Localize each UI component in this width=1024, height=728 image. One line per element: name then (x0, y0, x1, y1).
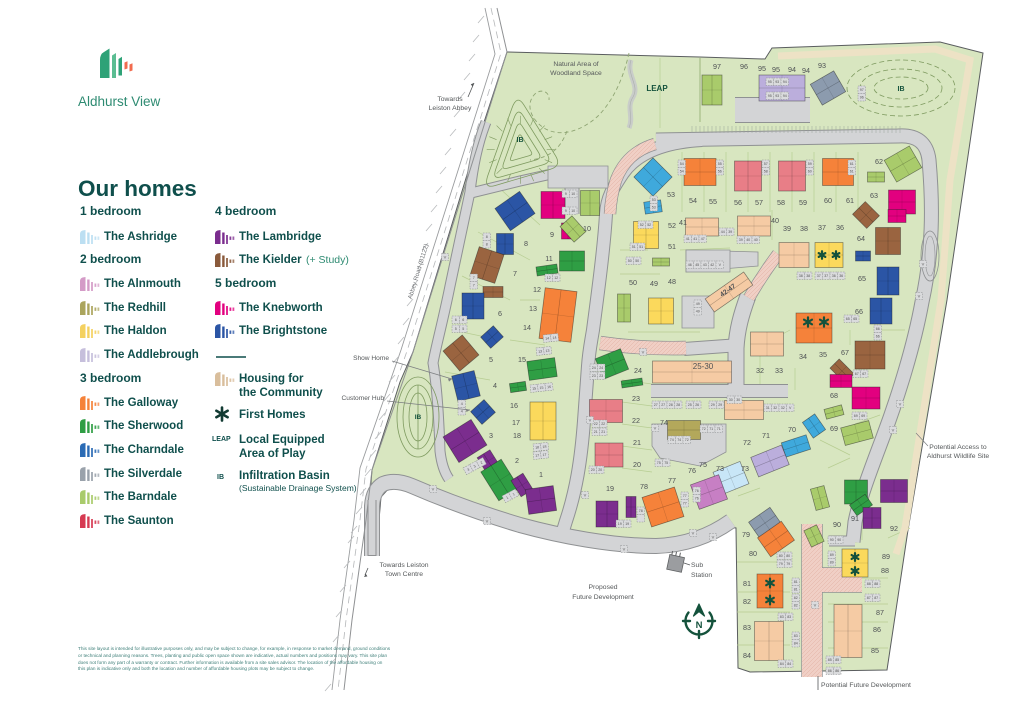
svg-text:69: 69 (861, 414, 865, 418)
svg-text:20: 20 (633, 460, 641, 469)
svg-text:30: 30 (736, 398, 740, 402)
svg-text:21: 21 (594, 430, 598, 434)
svg-text:49: 49 (696, 310, 700, 314)
svg-text:21: 21 (601, 430, 605, 434)
svg-text:81: 81 (743, 579, 751, 588)
svg-text:96: 96 (740, 62, 748, 71)
svg-text:15: 15 (532, 386, 536, 390)
svg-text:V: V (584, 493, 587, 498)
svg-text:Show Home: Show Home (353, 355, 389, 362)
svg-text:The Galloway: The Galloway (104, 397, 179, 409)
svg-text:5: 5 (462, 327, 464, 331)
svg-text:72: 72 (743, 438, 751, 447)
svg-text:76: 76 (688, 466, 696, 475)
svg-text:V: V (589, 418, 592, 423)
svg-text:23: 23 (632, 394, 640, 403)
svg-text:48: 48 (668, 277, 676, 286)
svg-text:28: 28 (669, 403, 673, 407)
svg-text:N: N (696, 620, 703, 631)
svg-text:4: 4 (493, 381, 497, 390)
svg-text:LEAP: LEAP (646, 84, 668, 93)
svg-text:51: 51 (668, 242, 676, 251)
svg-text:V: V (623, 547, 626, 552)
svg-text:19: 19 (618, 522, 622, 526)
svg-text:75: 75 (699, 460, 707, 469)
svg-text:Sub: Sub (691, 562, 703, 569)
svg-text:3 bedroom: 3 bedroom (80, 371, 141, 385)
svg-text:Proposed: Proposed (588, 584, 617, 591)
svg-text:64: 64 (857, 234, 865, 243)
svg-text:78: 78 (639, 509, 643, 513)
svg-text:V: V (922, 262, 925, 267)
svg-text:59: 59 (799, 198, 807, 207)
svg-text:59: 59 (808, 162, 812, 166)
svg-text:The Addlebrough: The Addlebrough (104, 349, 199, 361)
svg-text:Potential Future Development: Potential Future Development (821, 682, 911, 689)
svg-text:42: 42 (710, 263, 714, 267)
svg-text:38: 38 (806, 274, 810, 278)
svg-text:83: 83 (780, 615, 784, 619)
svg-text:39: 39 (728, 230, 732, 234)
svg-text:35: 35 (819, 350, 827, 359)
svg-text:9: 9 (565, 209, 567, 213)
svg-text:17: 17 (535, 453, 539, 457)
svg-text:49: 49 (696, 302, 700, 306)
svg-text:88: 88 (874, 582, 878, 586)
svg-text:18: 18 (542, 445, 546, 449)
svg-text:6: 6 (455, 318, 457, 322)
svg-text:87: 87 (874, 596, 878, 600)
svg-text:18: 18 (513, 431, 521, 440)
svg-text:4: 4 (461, 410, 463, 414)
svg-text:7: 7 (473, 284, 475, 288)
svg-text:10: 10 (571, 192, 575, 196)
svg-text:25-30: 25-30 (693, 362, 714, 371)
svg-text:44: 44 (721, 230, 725, 234)
svg-text:32: 32 (781, 406, 785, 410)
svg-text:93: 93 (775, 94, 779, 98)
svg-text:13: 13 (529, 304, 537, 313)
svg-text:V: V (642, 350, 645, 355)
svg-text:Future Development: Future Development (572, 594, 634, 601)
svg-text:77: 77 (668, 476, 676, 485)
svg-text:30: 30 (729, 398, 733, 402)
svg-text:66: 66 (876, 335, 880, 339)
svg-text:86: 86 (835, 669, 839, 673)
svg-text:9: 9 (550, 230, 554, 239)
svg-text:60: 60 (824, 196, 832, 205)
svg-text:84: 84 (787, 662, 791, 666)
svg-text:71: 71 (717, 427, 721, 431)
svg-text:V: V (918, 294, 921, 299)
svg-text:90: 90 (830, 538, 834, 542)
svg-text:87: 87 (876, 608, 884, 617)
svg-text:77: 77 (683, 502, 687, 506)
svg-text:56: 56 (734, 198, 742, 207)
svg-text:V: V (899, 402, 902, 407)
svg-text:V: V (654, 426, 657, 431)
svg-text:51: 51 (639, 245, 643, 249)
svg-text:78: 78 (640, 482, 648, 491)
svg-text:The Saunton: The Saunton (104, 515, 174, 527)
svg-text:46: 46 (688, 263, 692, 267)
svg-text:94: 94 (788, 65, 796, 74)
svg-text:84: 84 (794, 642, 798, 646)
svg-text:5 bedroom: 5 bedroom (215, 276, 276, 290)
svg-text:The Sherwood: The Sherwood (104, 420, 183, 432)
svg-text:89: 89 (882, 552, 890, 561)
svg-text:94: 94 (783, 94, 787, 98)
svg-text:V: V (814, 603, 817, 608)
svg-text:93: 93 (818, 61, 826, 70)
svg-text:Our homes: Our homes (78, 176, 197, 201)
svg-text:Leiston Abbey: Leiston Abbey (429, 105, 472, 112)
svg-text:62: 62 (875, 157, 883, 166)
svg-text:88: 88 (867, 582, 871, 586)
svg-text:32: 32 (773, 406, 777, 410)
svg-text:39: 39 (739, 238, 743, 242)
svg-text:52: 52 (647, 223, 651, 227)
svg-text:13: 13 (545, 349, 549, 353)
svg-text:85: 85 (835, 658, 839, 662)
svg-text:8: 8 (524, 239, 528, 248)
svg-text:50: 50 (629, 278, 637, 287)
svg-text:11: 11 (545, 254, 552, 263)
svg-text:29: 29 (711, 403, 715, 407)
svg-text:67: 67 (862, 372, 866, 376)
svg-text:7: 7 (473, 276, 475, 280)
svg-text:50: 50 (628, 259, 632, 263)
svg-text:51: 51 (632, 245, 636, 249)
svg-text:97: 97 (860, 88, 864, 92)
svg-text:29: 29 (718, 403, 722, 407)
svg-text:66: 66 (876, 327, 880, 331)
svg-text:71: 71 (762, 431, 770, 440)
svg-text:63: 63 (870, 191, 878, 200)
svg-text:36: 36 (836, 223, 844, 232)
svg-text:67: 67 (841, 348, 849, 357)
svg-text:Natural Area of: Natural Area of (553, 61, 598, 68)
svg-text:95: 95 (758, 64, 766, 73)
svg-text:94: 94 (802, 66, 810, 75)
svg-text:61: 61 (850, 170, 854, 174)
svg-text:92: 92 (890, 524, 898, 533)
svg-text:69: 69 (854, 414, 858, 418)
svg-text:95: 95 (768, 94, 772, 98)
svg-text:57: 57 (764, 162, 768, 166)
svg-text:26: 26 (695, 403, 699, 407)
svg-text:72: 72 (685, 438, 689, 442)
svg-text:16: 16 (510, 401, 518, 410)
svg-text:61: 61 (850, 162, 854, 166)
svg-text:The Alnmouth: The Alnmouth (104, 278, 181, 290)
svg-text:53: 53 (652, 206, 656, 210)
svg-text:Station: Station (691, 572, 712, 579)
svg-text:40: 40 (746, 238, 750, 242)
svg-text:Infiltration Basin: Infiltration Basin (239, 470, 330, 482)
svg-text:13: 13 (538, 349, 542, 353)
svg-text:37: 37 (818, 223, 826, 232)
svg-text:43: 43 (703, 263, 707, 267)
svg-text:The Ashridge: The Ashridge (104, 231, 177, 243)
svg-text:Towards: Towards (437, 96, 463, 103)
svg-text:81: 81 (794, 580, 798, 584)
svg-text:20: 20 (598, 468, 602, 472)
svg-text:70: 70 (788, 425, 796, 434)
svg-text:17: 17 (542, 453, 546, 457)
svg-text:71: 71 (709, 427, 713, 431)
svg-text:38: 38 (799, 274, 803, 278)
svg-text:56: 56 (718, 170, 722, 174)
svg-text:95: 95 (772, 65, 780, 74)
svg-text:Local Equipped: Local Equipped (239, 434, 325, 446)
svg-text:49: 49 (650, 279, 658, 288)
svg-text:22: 22 (632, 416, 640, 425)
svg-text:(Sustainable Drainage System): (Sustainable Drainage System) (239, 483, 357, 493)
svg-text:84: 84 (743, 651, 751, 660)
svg-text:72: 72 (702, 427, 706, 431)
svg-text:19: 19 (606, 484, 614, 493)
svg-text:40: 40 (771, 216, 779, 225)
svg-text:Woodland Space: Woodland Space (550, 70, 602, 77)
svg-text:69: 69 (830, 424, 838, 433)
svg-text:90: 90 (837, 538, 841, 542)
svg-text:82: 82 (794, 596, 798, 600)
svg-text:The Lambridge: The Lambridge (239, 231, 321, 243)
svg-text:IB: IB (517, 137, 524, 144)
svg-text:LEAP: LEAP (212, 436, 231, 443)
svg-text:V: V (712, 535, 715, 540)
svg-text:85: 85 (828, 658, 832, 662)
svg-text:9: 9 (565, 192, 567, 196)
svg-text:86: 86 (828, 669, 832, 673)
svg-text:10: 10 (571, 209, 575, 213)
svg-text:IB: IB (898, 86, 905, 93)
svg-text:V: V (486, 519, 489, 524)
svg-text:74: 74 (670, 438, 674, 442)
svg-text:IB: IB (415, 414, 422, 421)
svg-text:57: 57 (755, 198, 763, 207)
svg-text:74: 74 (677, 438, 681, 442)
svg-text:53: 53 (652, 198, 656, 202)
svg-text:12: 12 (547, 276, 551, 280)
svg-text:5: 5 (489, 355, 493, 364)
svg-text:87: 87 (867, 596, 871, 600)
svg-text:90: 90 (833, 520, 841, 529)
svg-text:36: 36 (839, 274, 843, 278)
svg-text:65: 65 (846, 317, 850, 321)
svg-text:80: 80 (786, 554, 790, 558)
svg-text:14: 14 (523, 323, 531, 332)
svg-text:41: 41 (686, 237, 690, 241)
svg-text:55: 55 (718, 162, 722, 166)
svg-text:37: 37 (824, 274, 828, 278)
svg-text:15: 15 (518, 355, 526, 364)
svg-text:82: 82 (743, 597, 751, 606)
svg-text:23: 23 (599, 374, 603, 378)
svg-text:80: 80 (779, 554, 783, 558)
svg-text:75: 75 (657, 461, 661, 465)
svg-text:95: 95 (768, 80, 772, 84)
svg-text:the Community: the Community (239, 387, 323, 399)
svg-text:55: 55 (709, 197, 717, 206)
svg-text:93: 93 (775, 80, 779, 84)
svg-text:82: 82 (794, 604, 798, 608)
svg-text:V: V (692, 531, 695, 536)
svg-text:88: 88 (881, 566, 889, 575)
svg-text:91: 91 (851, 514, 859, 523)
svg-text:17: 17 (512, 418, 520, 427)
svg-text:24: 24 (634, 366, 642, 375)
svg-text:50: 50 (635, 259, 639, 263)
svg-text:V: V (444, 255, 447, 260)
svg-text:81: 81 (794, 588, 798, 592)
svg-text:14: 14 (552, 336, 556, 340)
svg-text:89: 89 (830, 561, 834, 565)
svg-text:38: 38 (800, 224, 808, 233)
svg-text:Towards Leiston: Towards Leiston (379, 562, 428, 569)
svg-text:4: 4 (461, 402, 463, 406)
svg-text:76: 76 (695, 489, 699, 493)
svg-text:54: 54 (689, 196, 697, 205)
svg-text:The Charndale: The Charndale (104, 444, 184, 456)
svg-text:75: 75 (664, 461, 668, 465)
svg-text:54: 54 (680, 170, 684, 174)
svg-text:52: 52 (640, 223, 644, 227)
svg-text:16: 16 (547, 385, 551, 389)
svg-text:83: 83 (743, 623, 751, 632)
svg-text:73: 73 (741, 464, 749, 473)
svg-text:76: 76 (695, 497, 699, 501)
svg-text:Town Centre: Town Centre (385, 571, 423, 578)
svg-text:77: 77 (683, 494, 687, 498)
svg-text:37: 37 (817, 274, 821, 278)
svg-text:4 bedroom: 4 bedroom (215, 204, 276, 218)
svg-text:34: 34 (799, 352, 807, 361)
svg-text:28: 28 (676, 403, 680, 407)
svg-text:8: 8 (486, 243, 488, 247)
svg-text:1 bedroom: 1 bedroom (80, 204, 141, 218)
svg-text:19: 19 (625, 522, 629, 526)
svg-text:67: 67 (855, 372, 859, 376)
svg-text:Area of Play: Area of Play (239, 448, 306, 460)
svg-text:39: 39 (783, 224, 791, 233)
svg-text:Aldhurst View: Aldhurst View (78, 94, 161, 109)
svg-text:89: 89 (830, 553, 834, 557)
svg-text:14: 14 (545, 336, 549, 340)
svg-text:31: 31 (766, 406, 770, 410)
svg-text:53: 53 (667, 190, 675, 199)
svg-text:96: 96 (860, 96, 864, 100)
svg-text:V: V (432, 487, 435, 492)
svg-text:79: 79 (779, 562, 783, 566)
svg-text:40: 40 (754, 238, 758, 242)
svg-text:54: 54 (680, 162, 684, 166)
svg-text:20: 20 (591, 468, 595, 472)
svg-text:8: 8 (486, 235, 488, 239)
svg-text:73: 73 (716, 464, 724, 473)
svg-text:12: 12 (533, 285, 541, 294)
svg-text:65: 65 (858, 274, 866, 283)
svg-text:23: 23 (592, 374, 596, 378)
svg-text:10: 10 (583, 224, 591, 233)
svg-text:32: 32 (756, 366, 764, 375)
svg-text:52: 52 (668, 221, 676, 230)
svg-text:58: 58 (777, 198, 785, 207)
svg-text:3: 3 (489, 431, 493, 440)
svg-text:94: 94 (783, 80, 787, 84)
svg-text:5: 5 (455, 327, 457, 331)
svg-text:60: 60 (808, 170, 812, 174)
svg-text:1: 1 (539, 470, 543, 479)
svg-text:27: 27 (661, 403, 665, 407)
svg-text:84: 84 (780, 662, 784, 666)
svg-text:18: 18 (535, 445, 539, 449)
svg-text:79: 79 (742, 530, 750, 539)
svg-text:2 bedroom: 2 bedroom (80, 252, 141, 266)
svg-text:7: 7 (513, 269, 517, 278)
svg-text:First Homes: First Homes (239, 409, 305, 421)
svg-text:Aldhurst Wildlife Site: Aldhurst Wildlife Site (927, 453, 990, 460)
svg-text:6: 6 (462, 318, 464, 322)
svg-text:The Haldon: The Haldon (104, 325, 167, 337)
svg-text:47: 47 (701, 237, 705, 241)
svg-text:85: 85 (871, 646, 879, 655)
svg-text:58: 58 (764, 170, 768, 174)
svg-text:33: 33 (775, 366, 783, 375)
svg-text:41: 41 (679, 218, 687, 227)
svg-text:24: 24 (599, 366, 603, 370)
svg-text:36: 36 (832, 274, 836, 278)
svg-text:The Barndale: The Barndale (104, 491, 177, 503)
svg-text:45: 45 (695, 263, 699, 267)
svg-text:Customer Hub: Customer Hub (341, 395, 384, 402)
svg-text:27: 27 (654, 403, 658, 407)
svg-text:(+ Study): (+ Study) (306, 254, 349, 266)
svg-text:6: 6 (498, 309, 502, 318)
svg-text:80: 80 (749, 549, 757, 558)
svg-text:The Silverdale: The Silverdale (104, 468, 182, 480)
svg-text:66: 66 (855, 307, 863, 316)
svg-text:25: 25 (688, 403, 692, 407)
svg-text:83: 83 (794, 634, 798, 638)
svg-text:The Knebworth: The Knebworth (239, 302, 323, 314)
svg-text:86: 86 (873, 625, 881, 634)
svg-text:21: 21 (633, 438, 641, 447)
svg-text:61: 61 (846, 196, 854, 205)
svg-text:The Redhill: The Redhill (104, 302, 166, 314)
svg-text:15: 15 (539, 386, 543, 390)
svg-text:Potential Access to: Potential Access to (929, 444, 987, 451)
svg-text:22: 22 (601, 422, 605, 426)
svg-text:The Brightstone: The Brightstone (239, 325, 327, 337)
svg-text:65: 65 (853, 317, 857, 321)
svg-text:V: V (892, 428, 895, 433)
svg-text:2: 2 (515, 456, 519, 465)
svg-text:24: 24 (592, 366, 596, 370)
svg-text:12: 12 (554, 276, 558, 280)
svg-text:41: 41 (693, 237, 697, 241)
svg-text:IB: IB (217, 474, 224, 481)
svg-text:74: 74 (660, 418, 668, 427)
svg-text:Housing for: Housing for (239, 373, 304, 385)
svg-text:The Kielder: The Kielder (239, 254, 302, 266)
svg-text:22: 22 (594, 422, 598, 426)
svg-text:97: 97 (713, 62, 721, 71)
svg-text:68: 68 (830, 391, 838, 400)
svg-text:83: 83 (787, 615, 791, 619)
svg-text:79: 79 (786, 562, 790, 566)
